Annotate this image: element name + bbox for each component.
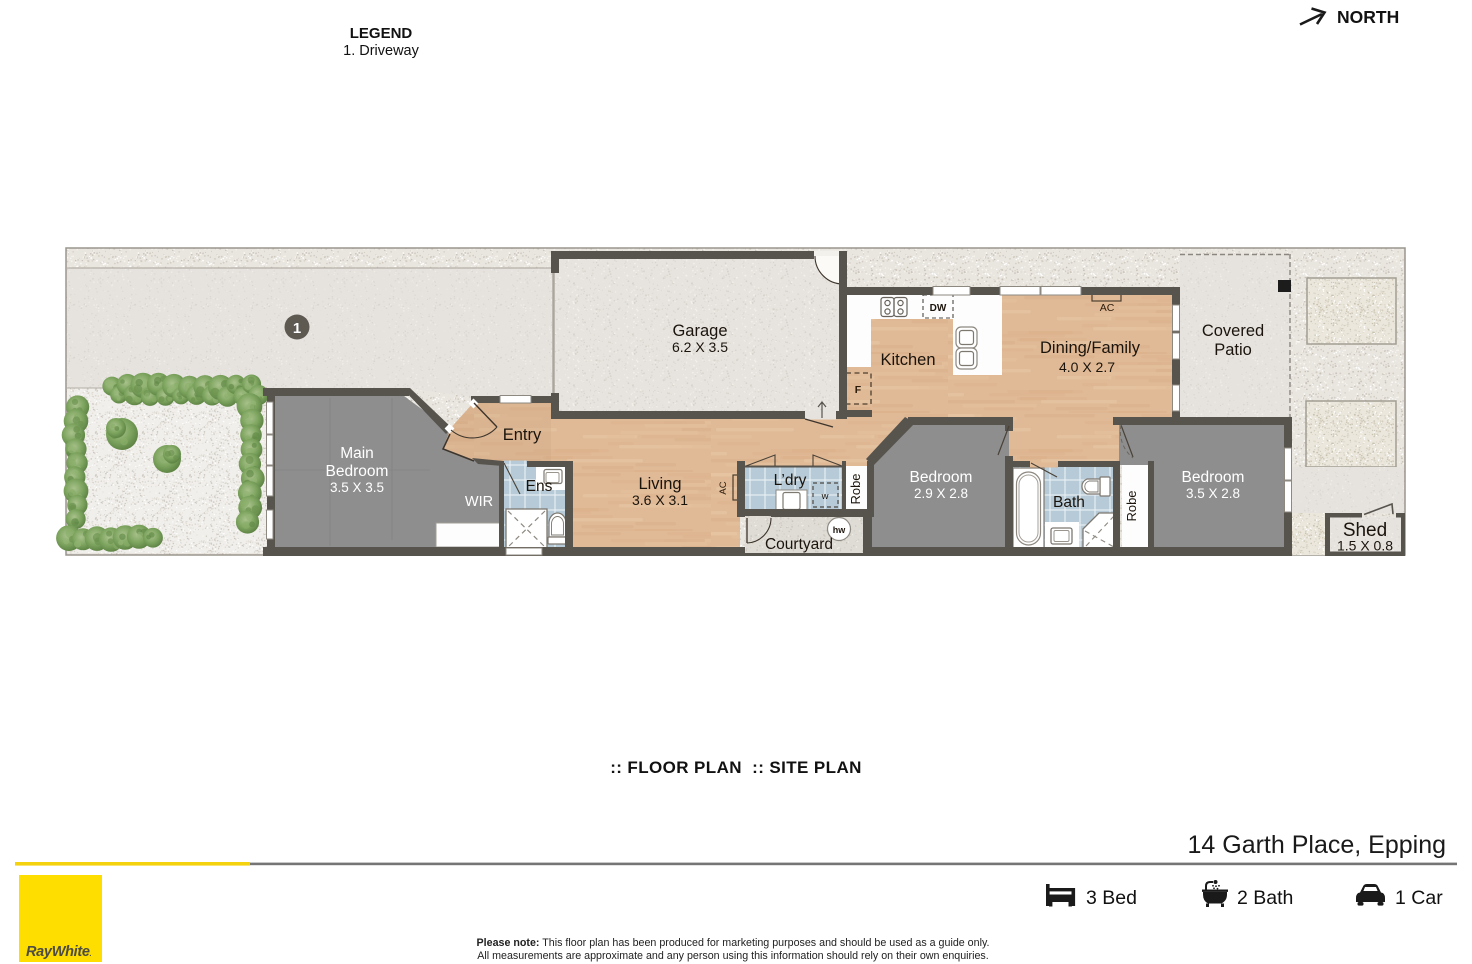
svg-text:L’dry: L’dry — [774, 472, 807, 489]
svg-text:AC: AC — [718, 481, 729, 494]
svg-text:w: w — [821, 491, 829, 502]
svg-text:2.9 X 2.8: 2.9 X 2.8 — [914, 486, 968, 501]
svg-text:DW: DW — [930, 303, 947, 314]
svg-text:Covered: Covered — [1202, 322, 1264, 340]
svg-text:WIR: WIR — [465, 494, 493, 510]
svg-text:4.0 X 2.7: 4.0 X 2.7 — [1059, 359, 1115, 375]
svg-text:All measurements are approxima: All measurements are approximate and any… — [477, 950, 989, 962]
svg-text:3.5 X 3.5: 3.5 X 3.5 — [330, 480, 384, 495]
svg-text:hw: hw — [833, 525, 846, 535]
svg-text:Living: Living — [638, 475, 681, 493]
svg-text:Robe: Robe — [1124, 490, 1139, 521]
svg-text:Kitchen: Kitchen — [880, 351, 935, 369]
svg-text:Bedroom: Bedroom — [910, 469, 973, 486]
svg-text:1.5 X 0.8: 1.5 X 0.8 — [1337, 538, 1393, 554]
svg-text:Garage: Garage — [672, 322, 727, 340]
svg-text:1: 1 — [293, 320, 301, 337]
svg-text:Patio: Patio — [1214, 341, 1252, 359]
svg-text:1 Car: 1 Car — [1395, 887, 1443, 909]
svg-text:F: F — [855, 384, 862, 396]
svg-text:NORTH: NORTH — [1337, 7, 1399, 27]
svg-text:Bath: Bath — [1053, 494, 1085, 511]
svg-text:Courtyard: Courtyard — [765, 536, 833, 553]
svg-text:AC: AC — [1100, 302, 1115, 314]
svg-text:Bedroom: Bedroom — [1182, 469, 1245, 486]
svg-text:Robe: Robe — [848, 473, 863, 504]
svg-text:3 Bed: 3 Bed — [1086, 887, 1137, 909]
svg-text:3.6 X 3.1: 3.6 X 3.1 — [632, 492, 688, 508]
svg-text:14 Garth Place, Epping: 14 Garth Place, Epping — [1188, 831, 1447, 859]
svg-text:Bedroom: Bedroom — [326, 463, 389, 480]
svg-text:Entry: Entry — [503, 426, 542, 444]
svg-text:2 Bath: 2 Bath — [1237, 887, 1293, 909]
svg-text:LEGEND: LEGEND — [350, 25, 413, 42]
svg-text:Dining/Family: Dining/Family — [1040, 339, 1141, 357]
svg-text:Main: Main — [340, 445, 374, 462]
svg-text:1. Driveway: 1. Driveway — [343, 43, 419, 59]
svg-text::: FLOOR PLAN :: SITE PLAN: :: FLOOR PLAN :: SITE PLAN — [610, 758, 862, 777]
svg-text:3.5 X 2.8: 3.5 X 2.8 — [1186, 486, 1240, 501]
svg-text:Ens: Ens — [526, 478, 553, 495]
svg-text:RayWhite.: RayWhite. — [26, 944, 92, 960]
svg-text:Please note: This floor plan h: Please note: This floor plan has been pr… — [477, 937, 990, 949]
svg-text:6.2 X 3.5: 6.2 X 3.5 — [672, 339, 728, 355]
